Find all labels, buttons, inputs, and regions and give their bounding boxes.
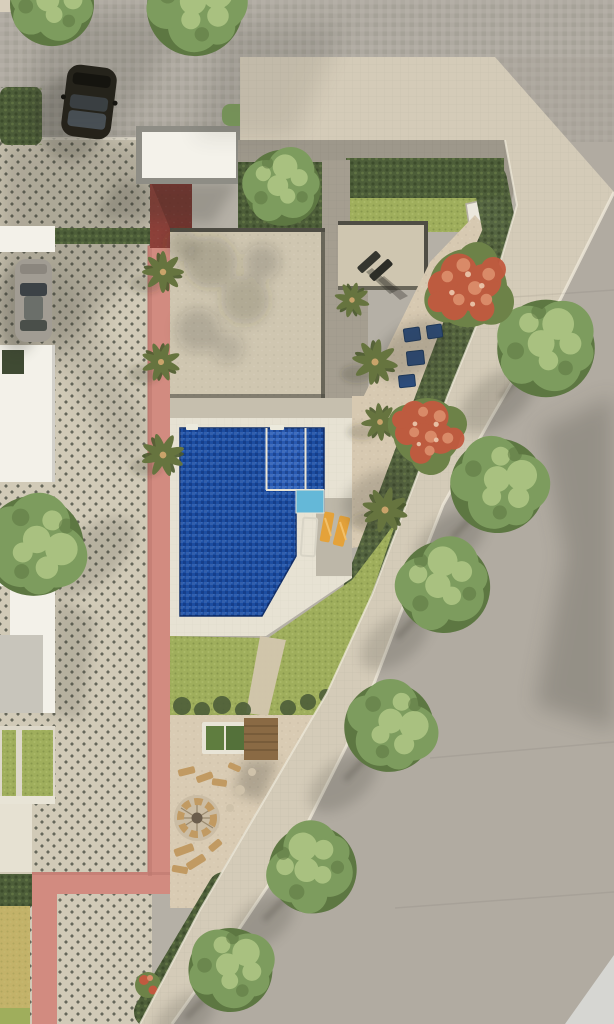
villa-main-roof — [166, 228, 325, 398]
neighbor-roof-strip — [0, 226, 55, 252]
fire-pit-circle — [174, 795, 220, 841]
palm-1 — [142, 251, 184, 293]
street-tree-1 — [497, 300, 595, 398]
aerial-site-render — [0, 0, 614, 1024]
pool-shallow-step — [296, 490, 324, 513]
neighbor-patio — [0, 804, 32, 872]
scene-svg — [0, 0, 614, 1024]
bottom-left-lawn — [0, 1008, 30, 1024]
wood-daybed — [244, 718, 278, 760]
villa-secondary-roof — [338, 221, 428, 300]
deck-strip — [170, 398, 352, 420]
silver-car — [15, 259, 52, 342]
neighbor-building-c-wing — [0, 635, 43, 713]
left-garden-strips — [0, 726, 55, 804]
green-table — [202, 722, 248, 754]
